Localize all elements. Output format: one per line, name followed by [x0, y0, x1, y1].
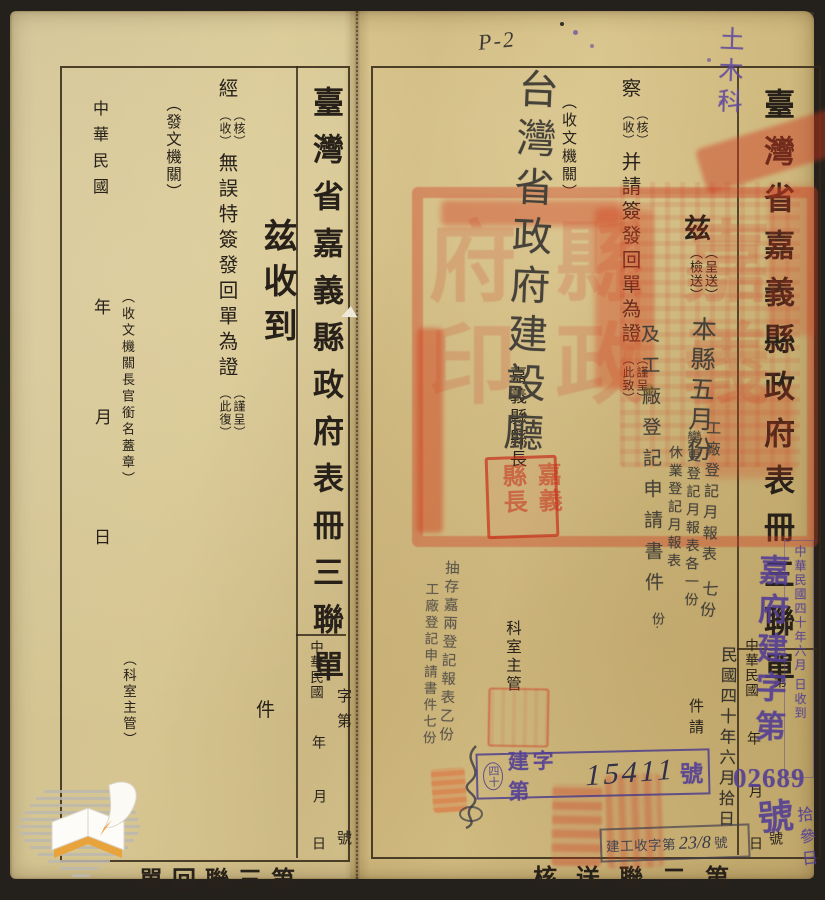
option-receive: （收）	[218, 109, 232, 148]
left-count-unit: 件	[256, 695, 275, 722]
left-form-title: 臺灣省嘉義縣政府表冊三聯單	[303, 86, 348, 697]
receipt-stamp-suffix: 號	[714, 831, 728, 851]
left-issuing-org-label: （發文機關）	[161, 96, 183, 201]
right-section-chief-label: 科室主管	[501, 620, 523, 694]
left-received-heading: 兹收到	[252, 218, 301, 353]
left-date-year: 年	[88, 298, 113, 315]
left-clause-body: 無誤特簽發回單為證	[215, 153, 236, 383]
left-clause-options-1: （核）（收）	[218, 109, 246, 148]
receipt-number-handwritten: 23/8	[678, 831, 713, 853]
left-date-day: 日	[88, 528, 113, 545]
registry-stamp-suffix: 號	[756, 788, 795, 842]
right-clause2-options-1: （核）（收）	[621, 108, 649, 147]
handwritten-extra-copy-mark: 份·	[648, 612, 667, 629]
option-check: （核）	[232, 109, 246, 148]
empty-seal-outline	[487, 687, 549, 747]
right-clause1-tail: 件請	[685, 698, 706, 740]
left-clause-lead: 經	[215, 78, 236, 104]
right-clause2-lead: 察	[618, 78, 639, 103]
scanned-triplicate-form: 臺灣省嘉義縣政府表冊三聯單 字第 號 中華民國 年 月 日 兹收到 經（核）（收…	[0, 0, 825, 900]
left-serial-year: 年	[307, 735, 327, 749]
option-in-reply: （此復）	[218, 387, 232, 439]
left-date-era: 中華民國	[86, 100, 110, 204]
ink-speck	[719, 100, 724, 105]
option-receive: （收）	[621, 108, 635, 147]
left-serial-suffix: 號	[333, 830, 354, 845]
archive-watermark-logo	[14, 770, 169, 890]
left-clause: 經（核）（收）無誤特簽發回單為證（謹呈）（此復）	[211, 78, 246, 444]
dispatch-year-circled: 四十	[483, 762, 504, 790]
department-annotation: 土木科	[708, 25, 747, 119]
left-clause-options-2: （謹呈）（此復）	[218, 387, 246, 439]
left-date-month: 月	[89, 408, 114, 425]
handwritten-content-count: 七份	[692, 579, 720, 623]
handwritten-margin-note-2: 工廠登記申請書件七份	[418, 582, 441, 747]
handwritten-content-tail: 及工廠登記申請書件	[635, 324, 667, 603]
option-respectfully: （謹呈）	[232, 387, 246, 439]
received-date-stamp: 中華民國四十年六月 日收到	[784, 540, 814, 778]
dispatch-stamp-suffix: 號	[680, 755, 704, 790]
dispatch-number-handwritten: 15411	[583, 753, 679, 794]
left-receiver-signature-label: （收文機關長官銜名蓋章）	[118, 290, 137, 488]
dispatch-number-stamp: 四十 建字第 15411 號	[476, 748, 711, 799]
left-serial-month: 月	[308, 789, 328, 803]
ink-speck	[560, 22, 564, 26]
handwritten-dispatch-date: 民國四十年六月拾日	[712, 646, 739, 831]
magistrate-seal-text: 嘉義縣長	[494, 462, 566, 528]
left-serial-era: 中華民國	[305, 640, 325, 700]
red-ink-band	[768, 185, 814, 335]
left-serial-day: 日	[307, 836, 327, 850]
option-check: （核）	[635, 108, 649, 147]
seal-ink-blotch	[417, 328, 443, 533]
receipt-number-stamp: 建工收字第 23/8 號	[599, 823, 750, 862]
page-annotation: P-2	[477, 26, 517, 56]
left-serial-prefix: 字第	[333, 688, 354, 738]
left-section-chief-label: （科室主管）	[118, 652, 138, 748]
ink-speck	[590, 44, 594, 48]
magistrate-seal: 嘉義縣長	[485, 455, 560, 539]
left-title-divider	[296, 66, 298, 858]
receipt-stamp-prefix: 建工收字第	[606, 833, 677, 855]
dispatch-stamp-prefix: 建字第	[507, 744, 581, 806]
ink-speck	[707, 58, 711, 62]
ink-speck	[573, 30, 578, 35]
received-date-stamp-text: 中華民國四十年六月 日收到	[792, 545, 809, 721]
paper-stain	[643, 383, 655, 396]
